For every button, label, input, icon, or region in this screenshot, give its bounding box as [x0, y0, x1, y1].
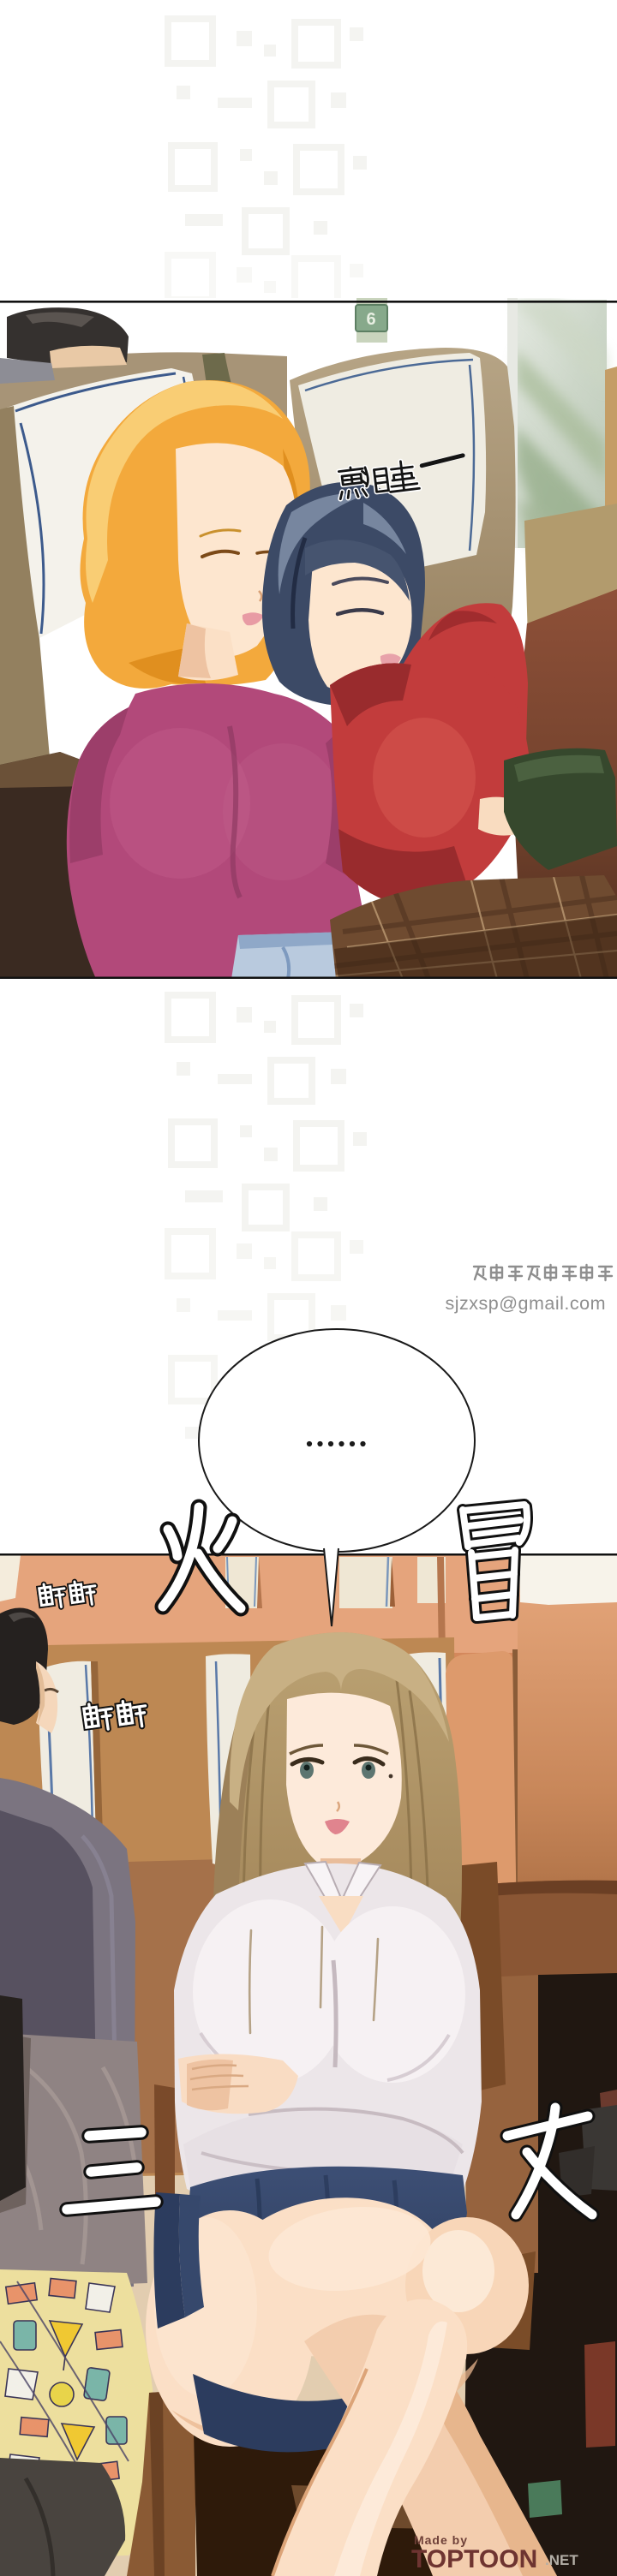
svg-text:TOPTOON: TOPTOON: [411, 2545, 537, 2573]
svg-text:.NET: .NET: [545, 2552, 578, 2568]
svg-text:sjzxsp@gmail.com: sjzxsp@gmail.com: [445, 1293, 606, 1314]
